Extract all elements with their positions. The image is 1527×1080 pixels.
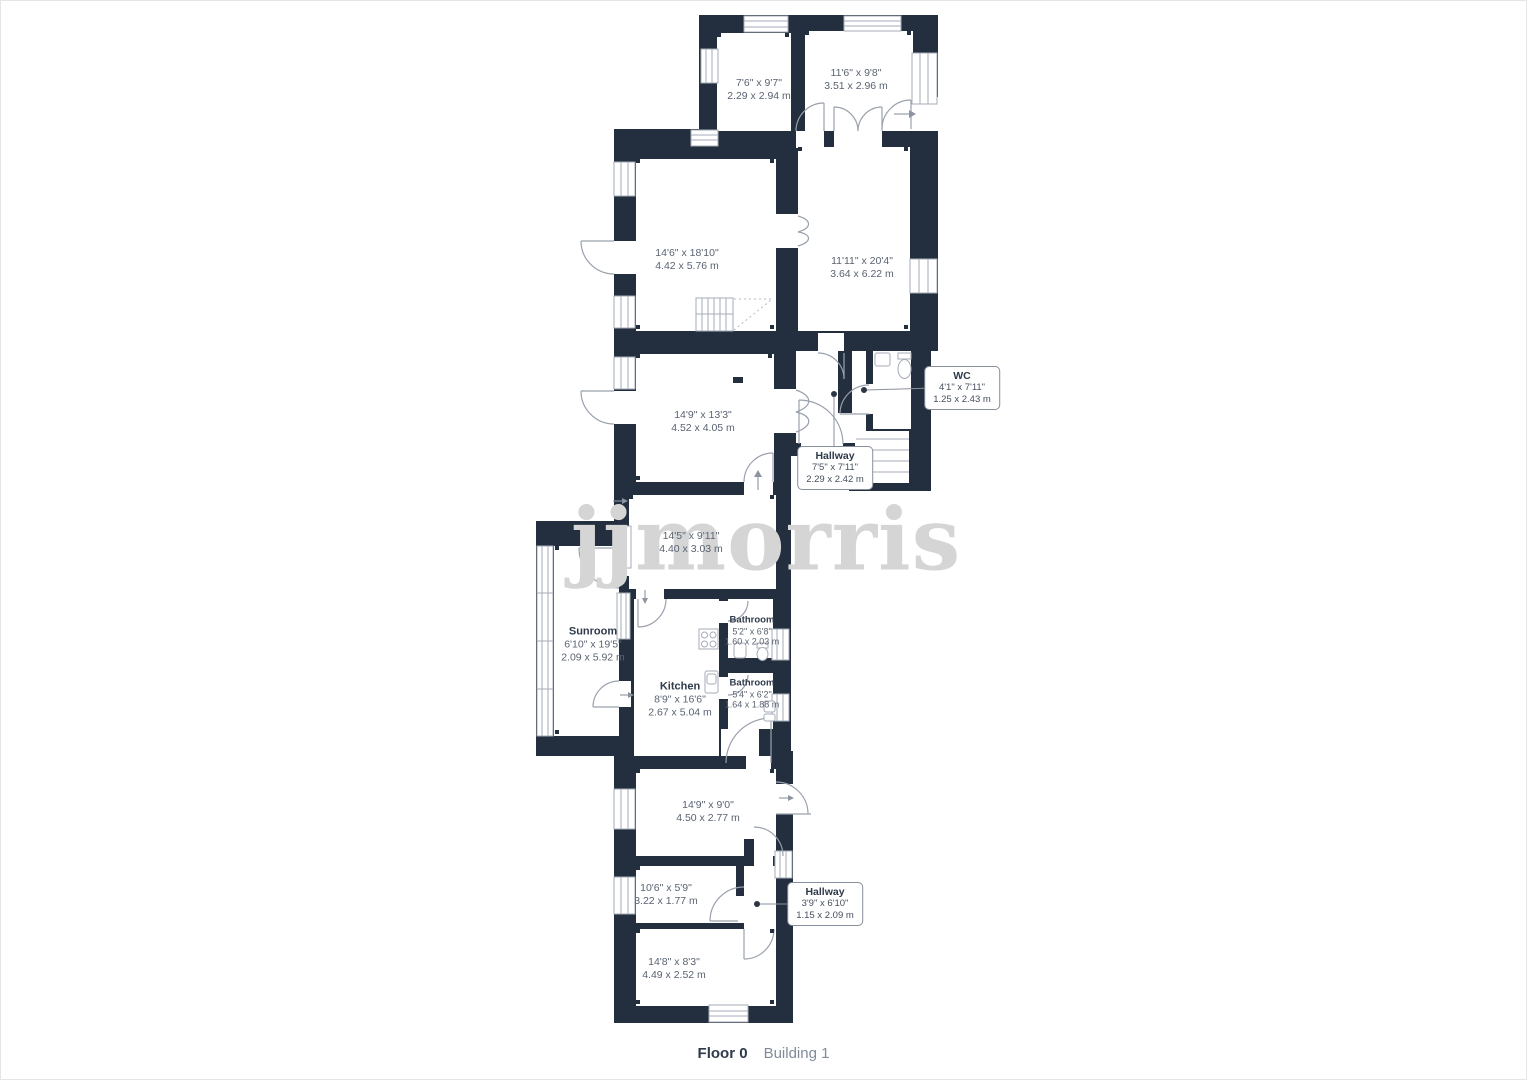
- callout-dim-metric: 1.25 x 2.43 m: [933, 394, 991, 406]
- room-label-r2: 11'6" x 9'8" 3.51 x 2.96 m: [824, 67, 888, 93]
- callout-hallway-2: Hallway 3'9" x 6'10" 1.15 x 2.09 m: [787, 882, 863, 926]
- window: [844, 16, 901, 31]
- callout-hallway-1: Hallway 7'5" x 7'11" 2.29 x 2.42 m: [797, 446, 873, 490]
- window: [614, 357, 635, 389]
- stove: [699, 629, 718, 649]
- room-label-r9: 14'8" x 8'3" 4.49 x 2.52 m: [642, 956, 706, 982]
- window: [537, 546, 553, 736]
- room-dim-imperial: 5'4" x 6'2": [725, 689, 780, 700]
- room-dim-imperial: 10'6" x 5'9": [634, 882, 698, 895]
- room-name: Bathroom: [725, 615, 780, 626]
- room-dim-metric: 1.64 x 1.88 m: [725, 699, 780, 710]
- room-dim-imperial: 14'9" x 9'0": [676, 799, 740, 812]
- window: [709, 1005, 748, 1022]
- wc-sink: [875, 353, 890, 366]
- room-label-bathroom-2: Bathroom 5'4" x 6'2" 1.64 x 1.88 m: [725, 678, 780, 710]
- window: [614, 877, 635, 914]
- room-label-r1: 7'6" x 9'7" 2.29 x 2.94 m: [727, 77, 791, 103]
- callout-dim-imperial: 3'9" x 6'10": [796, 898, 854, 910]
- callout-name: Hallway: [796, 886, 854, 898]
- callout-dim-imperial: 7'5" x 7'11": [806, 462, 864, 474]
- room-dim-metric: 4.49 x 2.52 m: [642, 969, 706, 982]
- room-name: Bathroom: [725, 678, 780, 689]
- floorplan-page: jjmorris 7'6" x 9'7" 2.29 x 2.94 m 11'6"…: [0, 0, 1527, 1080]
- room-dim-imperial: 11'11" x 20'4": [830, 255, 894, 268]
- room-dim-metric: 1.60 x 2.03 m: [725, 636, 780, 647]
- room-dim-imperial: 8'9" x 16'6": [648, 694, 712, 707]
- room-dim-imperial: 6'10" x 19'5": [561, 639, 625, 652]
- callout-name: WC: [933, 370, 991, 382]
- window: [701, 49, 718, 83]
- room-dim-metric: 3.64 x 6.22 m: [830, 268, 894, 281]
- plan-footer: Floor 0 Building 1: [1, 1045, 1526, 1062]
- room-dim-metric: 4.50 x 2.77 m: [676, 812, 740, 825]
- room-label-kitchen: Kitchen 8'9" x 16'6" 2.67 x 5.04 m: [648, 681, 712, 720]
- wc-toilet: [898, 353, 911, 379]
- room-label-r3: 14'6" x 18'10" 4.42 x 5.76 m: [655, 247, 719, 273]
- floor-selector-label[interactable]: Floor 0: [698, 1045, 748, 1062]
- room-dim-metric: 3.22 x 1.77 m: [634, 895, 698, 908]
- room-label-sunroom: Sunroom 6'10" x 19'5" 2.09 x 5.92 m: [561, 626, 625, 665]
- room-label-r4: 11'11" x 20'4" 3.64 x 6.22 m: [830, 255, 894, 281]
- callout-name: Hallway: [806, 450, 864, 462]
- window: [744, 16, 788, 32]
- room-dim-imperial: 14'6" x 18'10": [655, 247, 719, 260]
- window: [691, 130, 718, 146]
- room-dim-metric: 2.29 x 2.94 m: [727, 90, 791, 103]
- room-dim-imperial: 7'6" x 9'7": [727, 77, 791, 90]
- room-label-r7: 14'9" x 9'0" 4.50 x 2.77 m: [676, 799, 740, 825]
- window: [614, 296, 635, 328]
- window: [910, 259, 937, 293]
- room-name: Sunroom: [561, 626, 625, 639]
- building-selector-label[interactable]: Building 1: [764, 1045, 830, 1062]
- room-dim-metric: 2.09 x 5.92 m: [561, 652, 625, 665]
- room-dim-metric: 4.52 x 4.05 m: [671, 422, 735, 435]
- floorplan-drawing: [1, 1, 1527, 1080]
- callout-dim-metric: 2.29 x 2.42 m: [806, 474, 864, 486]
- room-dim-metric: 2.67 x 5.04 m: [648, 707, 712, 720]
- room-dim-metric: 4.42 x 5.76 m: [655, 260, 719, 273]
- room-dim-imperial: 14'9" x 13'3": [671, 409, 735, 422]
- room-label-bathroom-1: Bathroom 5'2" x 6'8" 1.60 x 2.03 m: [725, 615, 780, 647]
- room-label-r8: 10'6" x 5'9" 3.22 x 1.77 m: [634, 882, 698, 908]
- callout-wc: WC 4'1" x 7'11" 1.25 x 2.43 m: [924, 366, 1000, 410]
- room-name: Kitchen: [648, 681, 712, 694]
- room-dim-metric: 4.40 x 3.03 m: [659, 543, 723, 556]
- room-label-r5: 14'9" x 13'3" 4.52 x 4.05 m: [671, 409, 735, 435]
- callout-dim-imperial: 4'1" x 7'11": [933, 382, 991, 394]
- window: [614, 162, 635, 196]
- room-dim-metric: 3.51 x 2.96 m: [824, 80, 888, 93]
- room-dim-imperial: 14'5" x 9'11": [659, 530, 723, 543]
- room-label-r6: 14'5" x 9'11" 4.40 x 3.03 m: [659, 530, 723, 556]
- callout-dim-metric: 1.15 x 2.09 m: [796, 910, 854, 922]
- room-dim-imperial: 5'2" x 6'8": [725, 626, 780, 637]
- window: [912, 53, 937, 104]
- window: [614, 789, 635, 829]
- room-dim-imperial: 14'8" x 8'3": [642, 956, 706, 969]
- room-dim-imperial: 11'6" x 9'8": [824, 67, 888, 80]
